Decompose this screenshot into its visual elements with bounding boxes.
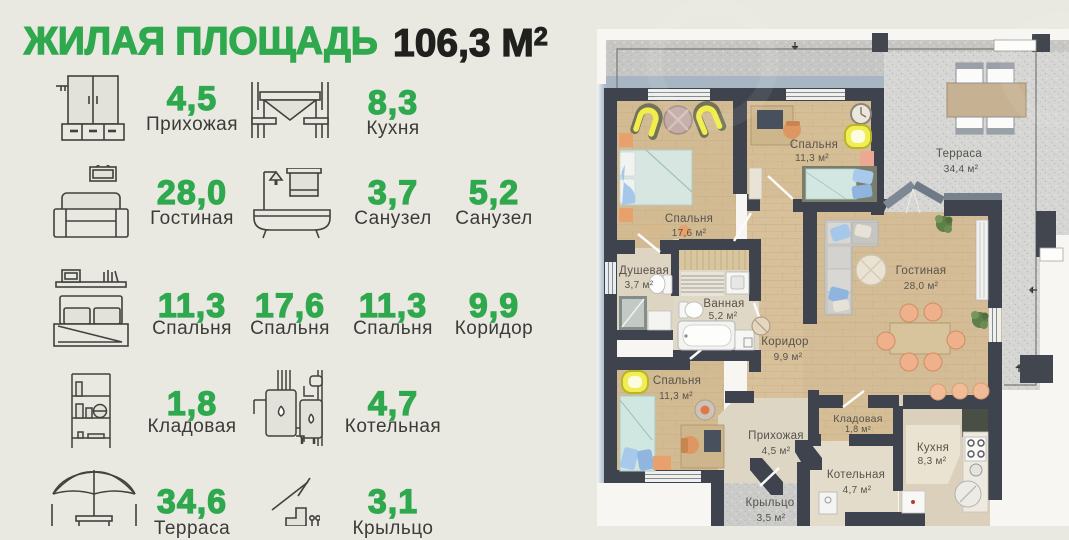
svg-text:1,8 м²: 1,8 м² — [845, 424, 871, 434]
svg-text:Спальня: Спальня — [665, 213, 713, 225]
svg-text:4,5 м²: 4,5 м² — [762, 446, 791, 457]
svg-text:Терраса: Терраса — [936, 148, 983, 160]
svg-text:Крыльцо: Крыльцо — [745, 497, 794, 509]
svg-text:5,2 м²: 5,2 м² — [709, 311, 738, 322]
svg-text:17,6 м²: 17,6 м² — [672, 228, 707, 239]
svg-text:Гостиная: Гостиная — [896, 265, 947, 277]
svg-text:Коридор: Коридор — [761, 336, 809, 348]
svg-text:28,0 м²: 28,0 м² — [904, 281, 939, 292]
svg-text:4,7 м²: 4,7 м² — [843, 485, 872, 496]
svg-text:9,9 м²: 9,9 м² — [774, 352, 803, 363]
svg-text:Котельная: Котельная — [827, 469, 885, 481]
svg-text:Душевая: Душевая — [619, 265, 669, 277]
svg-text:11,3 м²: 11,3 м² — [795, 153, 829, 164]
svg-text:Прихожая: Прихожая — [748, 430, 804, 442]
svg-text:3,7 м²: 3,7 м² — [625, 280, 654, 291]
svg-text:8,3 м²: 8,3 м² — [918, 456, 947, 467]
svg-text:Спальня: Спальня — [653, 375, 701, 387]
svg-text:34,4 м²: 34,4 м² — [944, 164, 979, 175]
svg-text:Ванная: Ванная — [703, 298, 744, 310]
svg-text:11,3 м²: 11,3 м² — [659, 391, 693, 402]
svg-text:Спальня: Спальня — [790, 139, 838, 151]
svg-text:Кухня: Кухня — [917, 442, 949, 454]
svg-text:3,5 м²: 3,5 м² — [757, 513, 786, 524]
